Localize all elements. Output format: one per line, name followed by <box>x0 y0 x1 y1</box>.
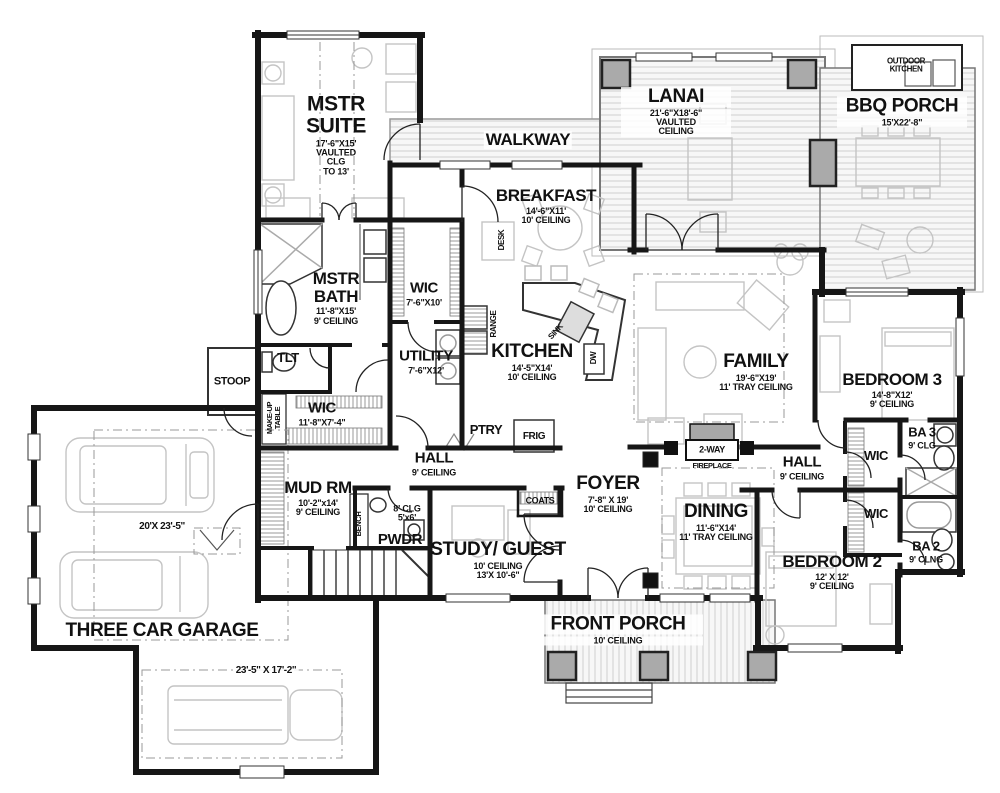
label-coats: COATS <box>526 496 555 505</box>
room-label-breakfast: BREAKFAST14'-6"X11' 10' CEILING <box>486 187 606 225</box>
label-fireplace-2way: 2-WAY <box>699 445 725 454</box>
label-desk: DESK <box>498 230 506 251</box>
room-label-utility: UTILITY7'-6"X12' <box>399 349 453 376</box>
room-label-kitchen: KITCHEN14'-5"X14' 10' CEILING <box>472 342 592 382</box>
room-label-mstr-bath: MSTR BATH11'-8"X15' 9' CEILING <box>294 270 378 326</box>
room-label-wic-r1: WIC <box>864 449 888 463</box>
room-label-wic-master: WIC7'-6"X10' <box>406 281 442 308</box>
room-label-family: FAMILY19'-6"X19' 11' TRAY CEILING <box>681 352 831 392</box>
room-label-mud-rm: MUD RM10'-2"x14' 9' CEILING <box>283 479 353 517</box>
label-fireplace: FIREPLACE <box>693 462 732 470</box>
room-label-hall-center: HALL9' CEILING <box>412 451 456 478</box>
room-label-study-guest: STUDY/ GUEST10' CEILING 13'X 10'-6" <box>413 540 583 580</box>
room-label-garage: THREE CAR GARAGE <box>52 621 272 641</box>
label-frig: FRIG <box>523 432 545 442</box>
room-label-ba3: BA 39' CLG <box>892 426 952 451</box>
floor-plan-canvas: MSTR SUITE17'-6"X15' VAULTED CLG TO 13' … <box>0 0 1000 793</box>
room-label-wic-r2: WIC <box>864 507 888 521</box>
room-label-dining: DINING11'-6"X14' 11' TRAY CEILING <box>651 502 781 542</box>
room-label-walkway: WALKWAY <box>484 131 572 149</box>
room-label-lanai: LANAI21'-6"X18'-6" VAULTED CEILING <box>621 87 731 137</box>
room-label-stoop: STOOP <box>214 376 250 387</box>
porch-steps <box>566 683 652 703</box>
room-label-foyer: FOYER7'-8" X 19' 10' CEILING <box>558 474 658 514</box>
label-bench: BENCH <box>355 512 363 537</box>
room-label-outdoor-kitchen: OUTDOOR KITCHEN <box>876 58 936 75</box>
room-label-hall-right: HALL9' CEILING <box>780 455 824 482</box>
label-garage-dim1: 20'X 23'-5" <box>137 522 187 532</box>
room-label-bedroom3: BEDROOM 314'-8"X12' 9' CEILING <box>817 371 967 409</box>
room-label-bbq-porch: BBQ PORCH15'X22'-8" <box>837 96 967 127</box>
label-garage-dim2: 23'-5" X 17'-2" <box>234 666 299 676</box>
room-label-ptry: PTRY <box>470 423 503 437</box>
room-label-tlt: TLT <box>277 351 299 365</box>
room-label-wic-master2: WIC11'-8"X7'-4" <box>299 401 346 428</box>
label-dw: DW <box>590 352 598 365</box>
room-label-bedroom2: BEDROOM 212' X 12' 9' CEILING <box>757 553 907 591</box>
label-pwdr-info: 8' CLG 5'x6' <box>393 503 420 524</box>
label-range: RANGE <box>490 311 498 338</box>
room-label-front-porch: FRONT PORCH10' CEILING <box>533 614 703 645</box>
room-label-mstr-suite: MSTR SUITE17'-6"X15' VAULTED CLG TO 13' <box>291 93 381 176</box>
garage-post-mark <box>200 530 234 550</box>
label-makeup-table: MAKE-UP TABLE <box>266 395 282 441</box>
